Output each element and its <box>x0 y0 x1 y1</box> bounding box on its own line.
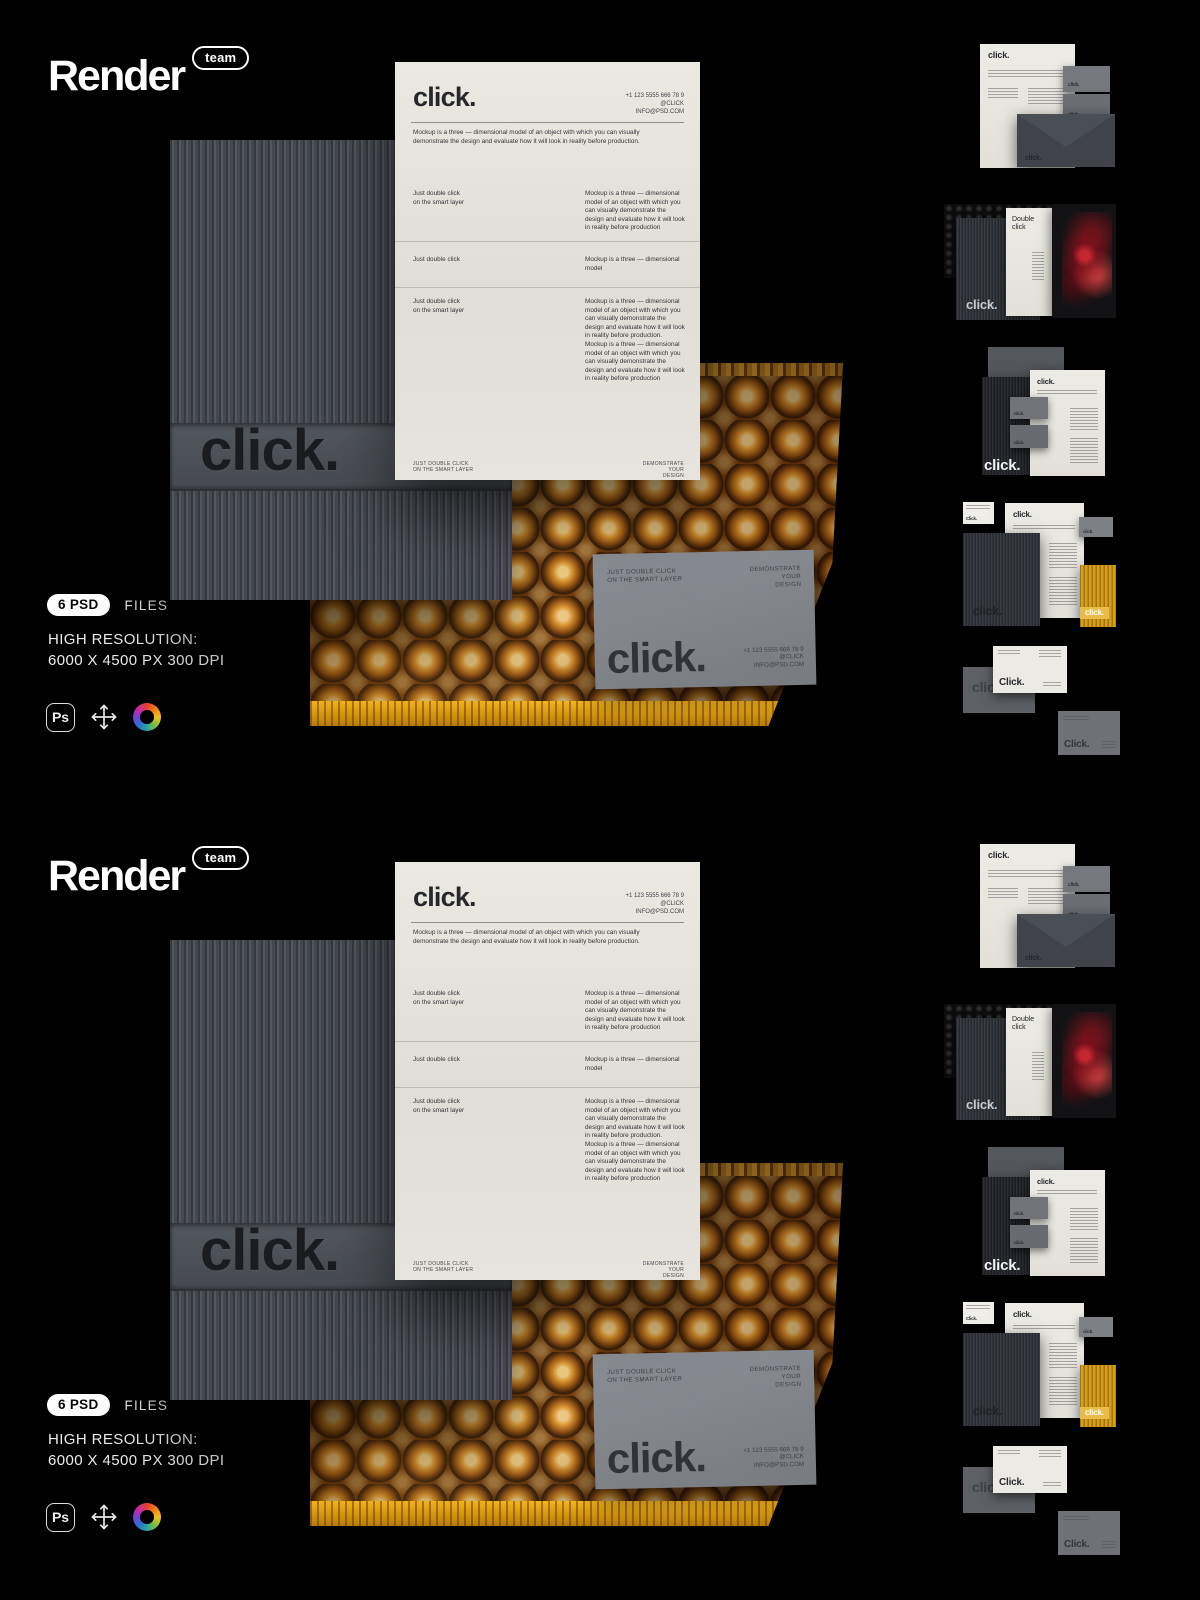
placeholder-text-lines <box>1049 543 1077 569</box>
color-wheel-icon <box>133 703 161 731</box>
color-wheel-hole <box>140 1510 154 1524</box>
letterhead-footer-right: DEMONSTRATE YOUR DESIGN <box>643 1262 684 1279</box>
thumb2-dark-page <box>1052 1004 1116 1118</box>
thumb5-gray-card: Click. <box>1058 711 1120 755</box>
thumb3-business-card: click. <box>1010 1225 1048 1248</box>
brand-logo: Render team <box>48 55 249 98</box>
letterhead-contact: +1 123 5555 666 78 9 @CLICK INFO@PSD.COM <box>625 92 684 116</box>
placeholder-text-lines <box>1063 716 1089 722</box>
resolution-line1: HIGH RESOLUTION: <box>48 629 224 650</box>
placeholder-text-lines <box>1049 1343 1077 1369</box>
thumbnail-black-mailer-brochure[interactable]: click. Double click <box>930 998 1116 1126</box>
move-icon <box>89 702 119 732</box>
placeholder-text-lines <box>1102 1541 1116 1549</box>
resolution-line2: 6000 X 4500 PX 300 DPI <box>48 1450 224 1471</box>
card-top-right: DEMONSTRATE YOUR DESIGN <box>749 565 801 591</box>
thumb3-card-logo: click. <box>1014 440 1024 445</box>
placeholder-text-lines <box>1013 1325 1075 1331</box>
letterhead-logo: click. <box>413 82 476 113</box>
thumb3-card-logo: click. <box>1014 411 1024 416</box>
letterhead-intro: Mockup is a three — dimensional model of… <box>413 129 665 146</box>
card-top-left: JUST DOUBLE CLICK ON THE SMART LAYER <box>607 567 682 585</box>
thumb1-envelope-logo: click. <box>1025 955 1041 962</box>
thumb3-business-card: click. <box>1010 425 1048 448</box>
thumb3-letterhead-logo: click. <box>1037 1177 1055 1186</box>
thumb3-letterhead: click. <box>1030 1170 1105 1276</box>
thumb4-mini-card-logo: Click. <box>966 516 977 521</box>
placeholder-text-lines <box>1043 682 1061 688</box>
letterhead-footer-left: JUST DOUBLE CLICK ON THE SMART LAYER <box>413 462 473 479</box>
thumb3-business-card: click. <box>1010 1197 1048 1219</box>
resolution-text: HIGH RESOLUTION: 6000 X 4500 PX 300 DPI <box>48 1429 224 1471</box>
thumbnail-black-mailer-brochure[interactable]: click. Double click <box>930 198 1116 326</box>
placeholder-text-lines <box>1013 525 1075 531</box>
files-label: FILES <box>125 1398 169 1413</box>
thumb3-card-logo: click. <box>1014 1211 1024 1216</box>
placeholder-text-lines <box>1070 408 1098 430</box>
thumb1-envelope: click. <box>1017 914 1115 967</box>
brand-logo: Render team <box>48 855 249 898</box>
thumbnail-stationery-yellow-card[interactable]: Click. click. click. click. click. <box>940 1287 1116 1427</box>
thumbnail-business-cards[interactable]: click. Click. Click. <box>940 645 1112 757</box>
placeholder-text-lines <box>988 88 1018 98</box>
fold-crease <box>395 1086 700 1088</box>
thumb2-brochure: Double click <box>1006 1008 1052 1116</box>
tool-icons-row: Ps <box>46 702 161 732</box>
placeholder-text-lines <box>1037 1190 1097 1196</box>
thumb4-yellow-card-logo: click. <box>1080 607 1109 619</box>
thumbnail-stationery-envelope[interactable]: click. click. click. click. <box>975 44 1115 172</box>
thumb4-mini-card: Click. <box>963 1302 994 1324</box>
placeholder-text-lines <box>998 650 1020 655</box>
letterhead-sheet: click. +1 123 5555 666 78 9 @CLICK INFO@… <box>395 62 700 480</box>
thumb4-folder-logo: click. <box>973 604 1002 618</box>
brand-team-badge: team <box>192 46 249 70</box>
placeholder-text-lines <box>1028 888 1066 904</box>
letterhead-row1-right: Mockup is a three — dimensional model of… <box>585 990 685 1033</box>
brand-name: Render <box>48 855 184 898</box>
thumb4-card-logo: click. <box>1083 529 1093 534</box>
photoshop-icon: Ps <box>46 703 75 732</box>
thumb4-mini-card-logo: Click. <box>966 1316 977 1321</box>
placeholder-text-lines <box>966 1305 990 1309</box>
placeholder-text-lines <box>1049 577 1077 607</box>
thumb2-folder-logo: click. <box>966 1097 997 1112</box>
thumb1-envelope-logo: click. <box>1025 155 1041 162</box>
psd-count-badge: 6 PSD <box>47 1394 110 1416</box>
resolution-line1: HIGH RESOLUTION: <box>48 1429 224 1450</box>
placeholder-text-lines <box>1063 1516 1089 1522</box>
thumb1-business-card: click. <box>1063 866 1110 892</box>
letterhead-footer-left: JUST DOUBLE CLICK ON THE SMART LAYER <box>413 1262 473 1279</box>
business-card: JUST DOUBLE CLICK ON THE SMART LAYER DEM… <box>593 550 817 690</box>
placeholder-text-lines <box>988 70 1066 78</box>
fold-crease <box>395 1040 700 1042</box>
letterhead-row3-right: Mockup is a three — dimensional model of… <box>585 1098 685 1184</box>
letterhead-footer: JUST DOUBLE CLICK ON THE SMART LAYER DEM… <box>413 1262 684 1279</box>
thumb4-business-card: click. <box>1079 1317 1113 1337</box>
letterhead-contact: +1 123 5555 666 78 9 @CLICK INFO@PSD.COM <box>625 892 684 916</box>
thumb2-red-abstract-art <box>1062 1012 1112 1108</box>
placeholder-text-lines <box>1028 88 1066 104</box>
psd-count-row: 6 PSD FILES <box>47 1394 168 1416</box>
card-logo: click. <box>606 1433 706 1483</box>
letterhead-footer: JUST DOUBLE CLICK ON THE SMART LAYER DEM… <box>413 462 684 479</box>
tool-icons-row: Ps <box>46 1502 161 1532</box>
brand-name: Render <box>48 55 184 98</box>
thumb4-card-logo: click. <box>1083 1329 1093 1334</box>
thumb3-card-logo: click. <box>1014 1240 1024 1245</box>
psd-count-badge: 6 PSD <box>47 594 110 616</box>
thumbnail-folder-letterhead-cards[interactable]: click. click. click. click. <box>958 345 1115 480</box>
letterhead-row3-left: Just double click on the smart layer <box>413 298 464 315</box>
letterhead-row2-right: Mockup is a three — dimensional model <box>585 1056 685 1073</box>
thumb3-caption: click. <box>984 1257 1020 1274</box>
placeholder-text-lines <box>1102 741 1116 749</box>
thumb2-brochure-title: Double click <box>1012 1016 1038 1031</box>
resolution-line2: 6000 X 4500 PX 300 DPI <box>48 650 224 671</box>
thumb1-card-logo: click. <box>1068 882 1079 888</box>
thumb3-caption: click. <box>984 457 1020 474</box>
thumb3-letterhead: click. <box>1030 370 1105 476</box>
thumb1-letterhead-logo: click. <box>988 850 1009 860</box>
letterhead-footer-right: DEMONSTRATE YOUR DESIGN <box>643 462 684 479</box>
letterhead-row1-left: Just double click on the smart layer <box>413 990 464 1007</box>
thumb5-white-card-logo: Click. <box>999 677 1024 688</box>
thumb2-folder-logo: click. <box>966 297 997 312</box>
placeholder-text-lines <box>1037 390 1097 396</box>
letterhead-sheet: click. +1 123 5555 666 78 9 @CLICK INFO@… <box>395 862 700 1280</box>
color-wheel-icon <box>133 1503 161 1531</box>
promo-panel: Render team click. click. +1 123 5555 66… <box>0 0 1200 800</box>
thumb4-yellow-card-logo: click. <box>1080 1407 1109 1419</box>
page-background: Render team click. click. +1 123 5555 66… <box>0 0 1200 1600</box>
thumb4-folder-logo: click. <box>973 1404 1002 1418</box>
letterhead-divider <box>411 122 684 123</box>
thumb4-folder: click. <box>963 1333 1040 1426</box>
thumb2-brochure: Double click <box>1006 208 1052 316</box>
files-label: FILES <box>125 598 169 613</box>
card-contact: +1 123 5555 666 78 9 @CLICK INFO@PSD.COM <box>743 646 804 671</box>
folder-emboss-logo: click. <box>200 417 339 484</box>
letterhead-row3-right: Mockup is a three — dimensional model of… <box>585 298 685 384</box>
letterhead-intro: Mockup is a three — dimensional model of… <box>413 929 665 946</box>
placeholder-text-lines <box>1032 1052 1044 1082</box>
letterhead-row1-left: Just double click on the smart layer <box>413 190 464 207</box>
placeholder-text-lines <box>1032 252 1044 282</box>
placeholder-text-lines <box>1049 1377 1077 1407</box>
thumb4-letterhead-logo: click. <box>1013 1310 1032 1319</box>
letterhead-row2-left: Just double click <box>413 1056 460 1065</box>
placeholder-text-lines <box>1070 1238 1098 1264</box>
card-logo: click. <box>606 633 706 683</box>
card-contact: +1 123 5555 666 78 9 @CLICK INFO@PSD.COM <box>743 1446 804 1471</box>
psd-count-row: 6 PSD FILES <box>47 594 168 616</box>
thumb5-white-card: Click. <box>993 1446 1067 1493</box>
mailer-bottom-strip <box>310 701 843 726</box>
letterhead-logo: click. <box>413 882 476 913</box>
thumb4-folder: click. <box>963 533 1040 626</box>
brand-team-badge: team <box>192 846 249 870</box>
thumb3-letterhead-logo: click. <box>1037 377 1055 386</box>
placeholder-text-lines <box>1070 1208 1098 1230</box>
thumb4-business-card: click. <box>1079 517 1113 537</box>
thumb1-letterhead-logo: click. <box>988 50 1009 60</box>
placeholder-text-lines <box>1043 1482 1061 1488</box>
photoshop-icon-label: Ps <box>52 1509 69 1525</box>
thumb3-business-card: click. <box>1010 397 1048 419</box>
placeholder-text-lines <box>988 870 1066 878</box>
photoshop-icon-label: Ps <box>52 709 69 725</box>
thumb5-white-card-logo: Click. <box>999 1477 1024 1488</box>
fold-crease <box>395 240 700 242</box>
letterhead-row1-right: Mockup is a three — dimensional model of… <box>585 190 685 233</box>
thumb5-white-card: Click. <box>993 646 1067 693</box>
thumb2-brochure-title: Double click <box>1012 216 1038 231</box>
thumb5-gray-card-logo: Click. <box>1064 739 1089 750</box>
color-wheel-hole <box>140 710 154 724</box>
thumb4-letterhead-logo: click. <box>1013 510 1032 519</box>
thumbnail-stationery-yellow-card[interactable]: Click. click. click. click. click. <box>940 487 1116 627</box>
placeholder-text-lines <box>1039 650 1061 657</box>
thumb2-dark-page <box>1052 204 1116 318</box>
thumbnail-folder-letterhead-cards[interactable]: click. click. click. click. <box>958 1145 1115 1280</box>
thumbnail-business-cards[interactable]: click. Click. Click. <box>940 1445 1112 1557</box>
card-top-right: DEMONSTRATE YOUR DESIGN <box>749 1365 801 1391</box>
move-icon <box>89 1502 119 1532</box>
thumb4-yellow-card: click. <box>1080 565 1116 627</box>
thumb4-mini-card: Click. <box>963 502 994 524</box>
letterhead-divider <box>411 922 684 923</box>
photoshop-icon: Ps <box>46 1503 75 1532</box>
promo-panel: Render team click. click. +1 123 5555 66… <box>0 800 1200 1600</box>
letterhead-row3-left: Just double click on the smart layer <box>413 1098 464 1115</box>
resolution-text: HIGH RESOLUTION: 6000 X 4500 PX 300 DPI <box>48 629 224 671</box>
business-card: JUST DOUBLE CLICK ON THE SMART LAYER DEM… <box>593 1350 817 1490</box>
letterhead-row2-right: Mockup is a three — dimensional model <box>585 256 685 273</box>
placeholder-text-lines <box>1039 1450 1061 1457</box>
mailer-bottom-strip <box>310 1501 843 1526</box>
card-top-left: JUST DOUBLE CLICK ON THE SMART LAYER <box>607 1367 682 1385</box>
letterhead-row2-left: Just double click <box>413 256 460 265</box>
thumbnail-stationery-envelope[interactable]: click. click. click. click. <box>975 844 1115 972</box>
thumb4-yellow-card: click. <box>1080 1365 1116 1427</box>
placeholder-text-lines <box>1070 438 1098 464</box>
thumb1-card-logo: click. <box>1068 82 1079 88</box>
thumb1-envelope: click. <box>1017 114 1115 167</box>
thumb1-business-card: click. <box>1063 66 1110 92</box>
folder-emboss-logo: click. <box>200 1217 339 1284</box>
thumb2-red-abstract-art <box>1062 212 1112 308</box>
placeholder-text-lines <box>998 1450 1020 1455</box>
fold-crease <box>395 286 700 288</box>
thumb5-gray-card-logo: Click. <box>1064 1539 1089 1550</box>
placeholder-text-lines <box>966 505 990 509</box>
thumb5-gray-card: Click. <box>1058 1511 1120 1555</box>
placeholder-text-lines <box>988 888 1018 898</box>
